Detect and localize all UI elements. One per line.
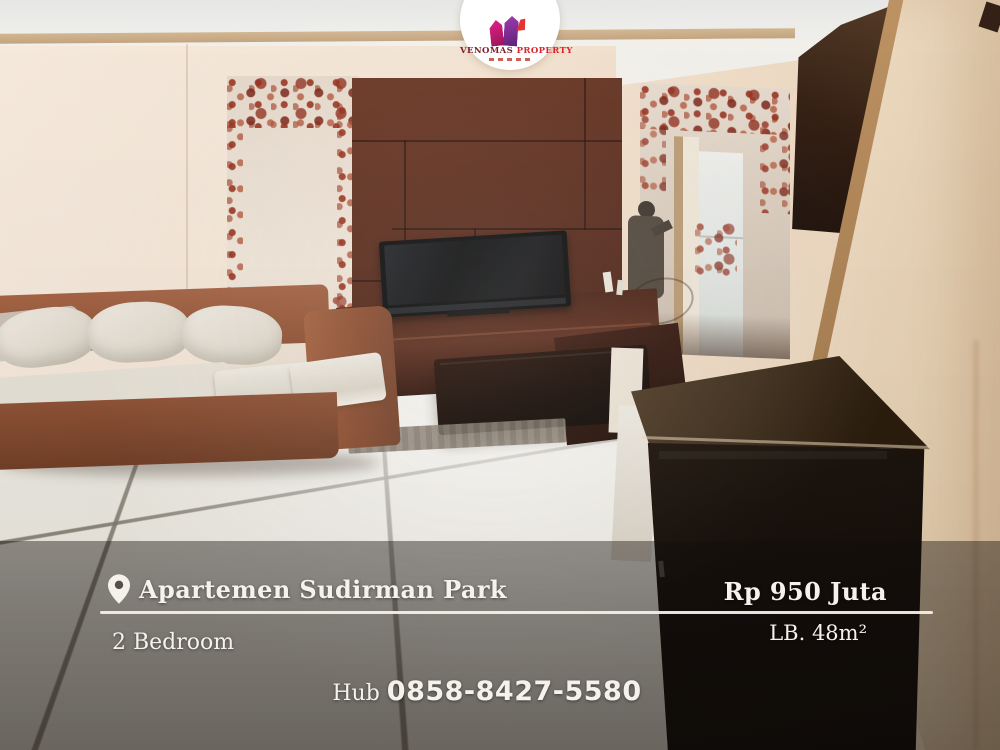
location-text: Apartemen Sudirman Park: [139, 575, 507, 604]
mirror-ornament: [760, 118, 790, 214]
contact-number: 0858-8427-5580: [387, 676, 642, 707]
building-towers-icon: [488, 16, 532, 46]
mirror-ornament: [640, 113, 666, 194]
listing-contact: Hub 0858-8427-5580: [0, 676, 974, 707]
panel-seam: [584, 78, 586, 230]
listing-bedrooms: 2 Bedroom: [112, 630, 234, 655]
logo-tower: [489, 19, 505, 46]
agency-tagline-marks: [489, 58, 531, 61]
listing-building-area: LB. 48m²: [769, 621, 867, 645]
caption-divider-line: [100, 611, 933, 614]
panel-seam: [392, 228, 622, 230]
listing-price: Rp 950 Juta: [724, 577, 887, 606]
sofa: [0, 282, 415, 482]
sofa-pillow: [86, 299, 191, 364]
contact-label: Hub: [332, 681, 379, 706]
wall-corner-line: [186, 44, 188, 304]
logo-tower: [503, 16, 519, 47]
location-pin-icon: [108, 574, 130, 604]
mirror-ornament: [695, 220, 737, 280]
agency-name-part1: VENOMAS: [460, 46, 513, 56]
sofa-base: [0, 392, 339, 470]
listing-location: Apartemen Sudirman Park: [108, 574, 507, 604]
agency-name: VENOMAS PROPERTY: [460, 46, 560, 56]
cabinet-reflection: [659, 451, 887, 459]
agency-name-part2: PROPERTY: [517, 46, 573, 56]
property-listing-photo: Apartemen Sudirman Park Rp 950 Juta 2 Be…: [0, 0, 1000, 750]
panel-seam: [352, 140, 622, 142]
